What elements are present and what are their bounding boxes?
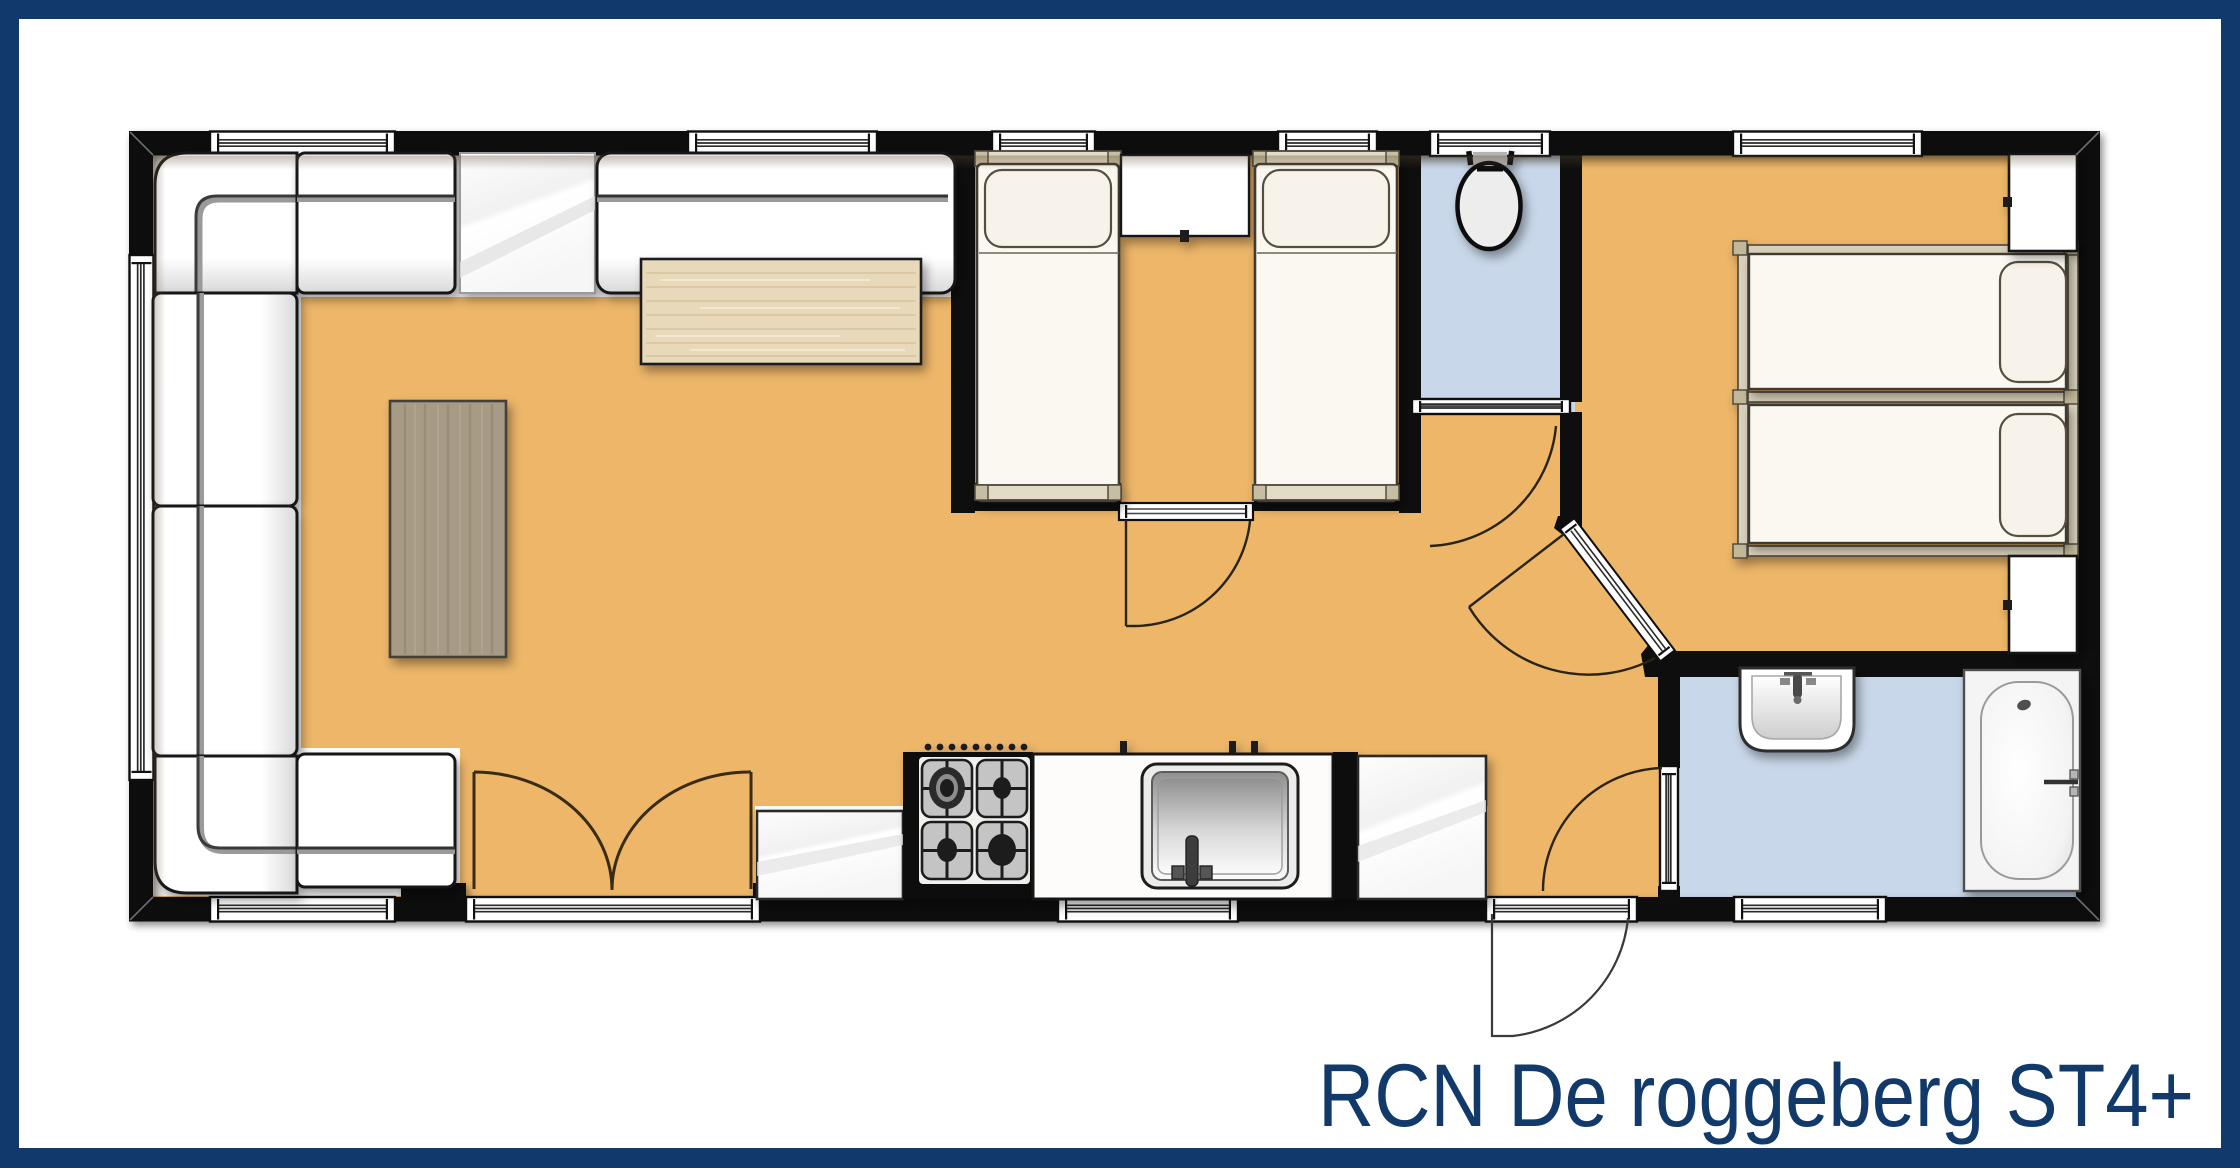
svg-text:RCN De roggeberg ST4+: RCN De roggeberg ST4+ (1318, 1045, 2194, 1145)
